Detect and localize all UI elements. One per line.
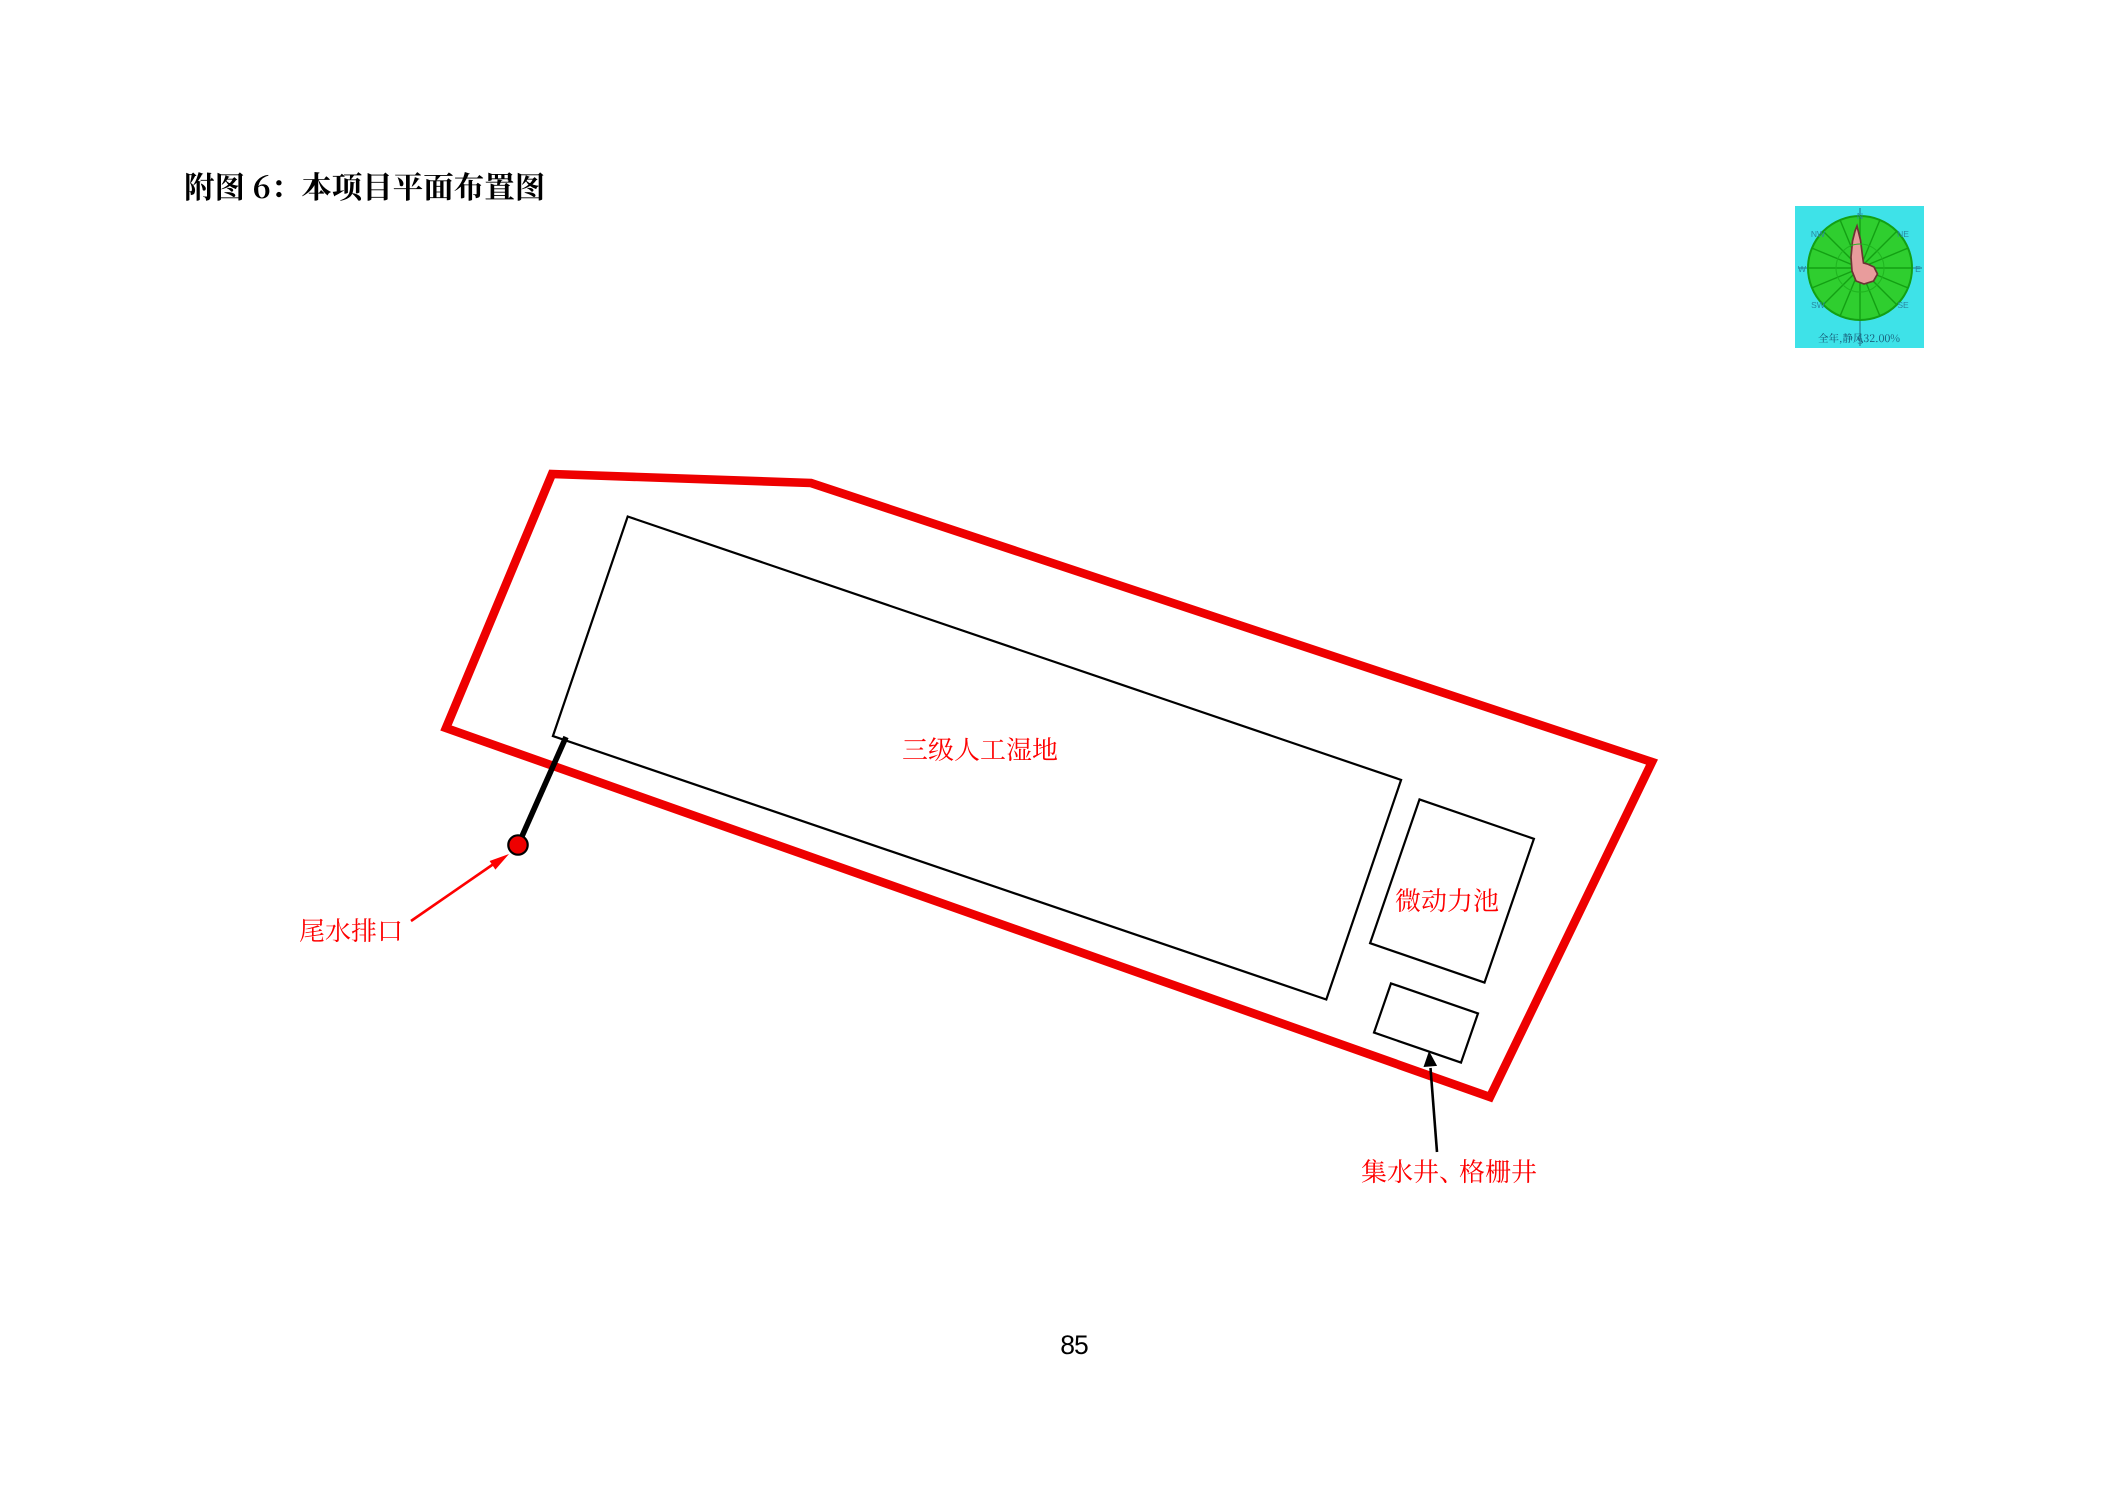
svg-text:NW: NW: [1811, 229, 1825, 239]
svg-text:85: 85: [1060, 1330, 1088, 1360]
svg-text:E: E: [1915, 264, 1921, 274]
svg-text:SW: SW: [1811, 300, 1825, 310]
svg-text:SE: SE: [1897, 300, 1909, 310]
svg-text:W: W: [1798, 264, 1806, 274]
svg-text:NE: NE: [1897, 229, 1909, 239]
svg-text:N: N: [1857, 211, 1863, 221]
